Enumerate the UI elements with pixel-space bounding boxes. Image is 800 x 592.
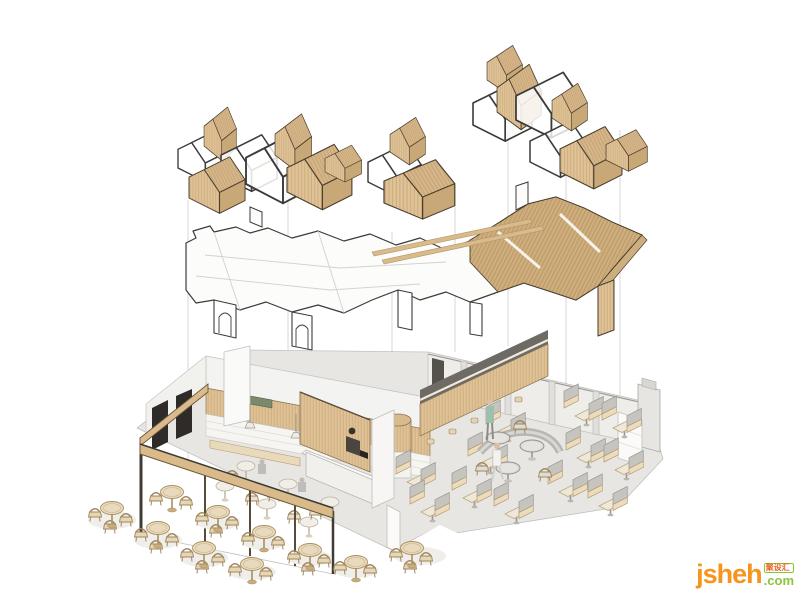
cafe-table (258, 499, 276, 520)
junction-white-column (387, 505, 400, 554)
cafe-chair (246, 493, 259, 506)
cafe-table (300, 517, 318, 538)
floor-layer (88, 330, 663, 584)
cluster-3 (368, 117, 455, 219)
ceiling-wood-slats (470, 197, 642, 300)
exploded-axonometric-diagram: jsheh 聚设汇 .com (0, 0, 800, 592)
corner-white-wall (224, 346, 250, 426)
watermark: jsheh 聚设汇 .com (696, 561, 794, 588)
cluster-2 (246, 114, 362, 210)
watermark-tld: .com (764, 574, 794, 587)
mid-white-wall (372, 410, 394, 508)
watermark-brand: jsheh (696, 561, 762, 588)
watermark-cjk-badge: 聚设汇 (764, 563, 794, 573)
diagram-canvas (0, 0, 800, 592)
concept-volume-clusters (178, 45, 647, 219)
